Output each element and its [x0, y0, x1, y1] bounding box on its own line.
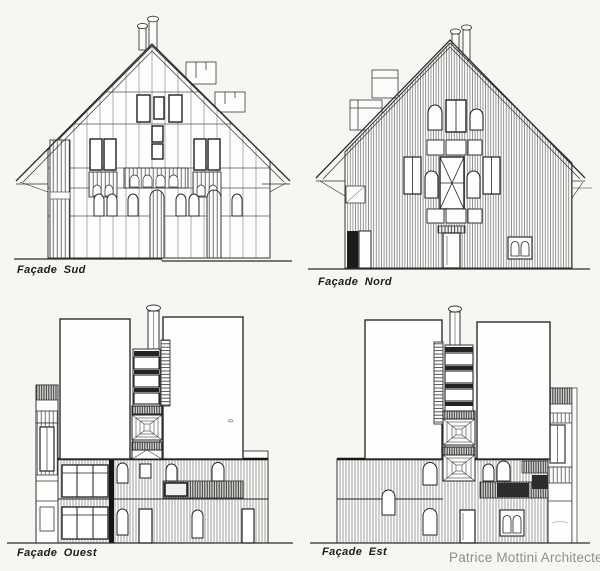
nord-dark-door: [347, 231, 358, 268]
nord-double-arch-window: [508, 237, 532, 259]
est-right-roof-slab: [477, 322, 550, 459]
sud-ground-line: [14, 259, 292, 261]
sud-chimney: [138, 16, 159, 50]
ouest-left-roof-slab: [60, 319, 130, 459]
facade-sud-label: Façade Sud: [17, 264, 86, 276]
facade-ouest-label: Façade Ouest: [17, 547, 97, 559]
facade-nord-drawing: [300, 0, 600, 290]
nord-leanto: [346, 186, 365, 203]
nord-door: [443, 233, 460, 268]
est-right-tower: [548, 388, 577, 543]
facade-nord-label: Façade Nord: [318, 276, 392, 288]
drawing-sheet: Façade Sud Façade Nord Façade Ouest Faça…: [0, 0, 600, 571]
attribution-text: Patrice Mottini Architecte: [449, 550, 600, 565]
nord-door-transom: [438, 226, 465, 233]
ouest-left-tower: [36, 385, 58, 543]
facade-ouest-drawing: [0, 285, 300, 571]
facade-est-drawing: [300, 285, 600, 571]
nord-side-door: [359, 231, 371, 268]
est-left-roof-slab: [365, 320, 442, 459]
facade-sud-drawing: [0, 0, 300, 285]
ouest-lower-wall: [58, 451, 268, 543]
facade-est-label: Façade Est: [322, 546, 387, 558]
ouest-right-roof-slab: [163, 317, 243, 459]
